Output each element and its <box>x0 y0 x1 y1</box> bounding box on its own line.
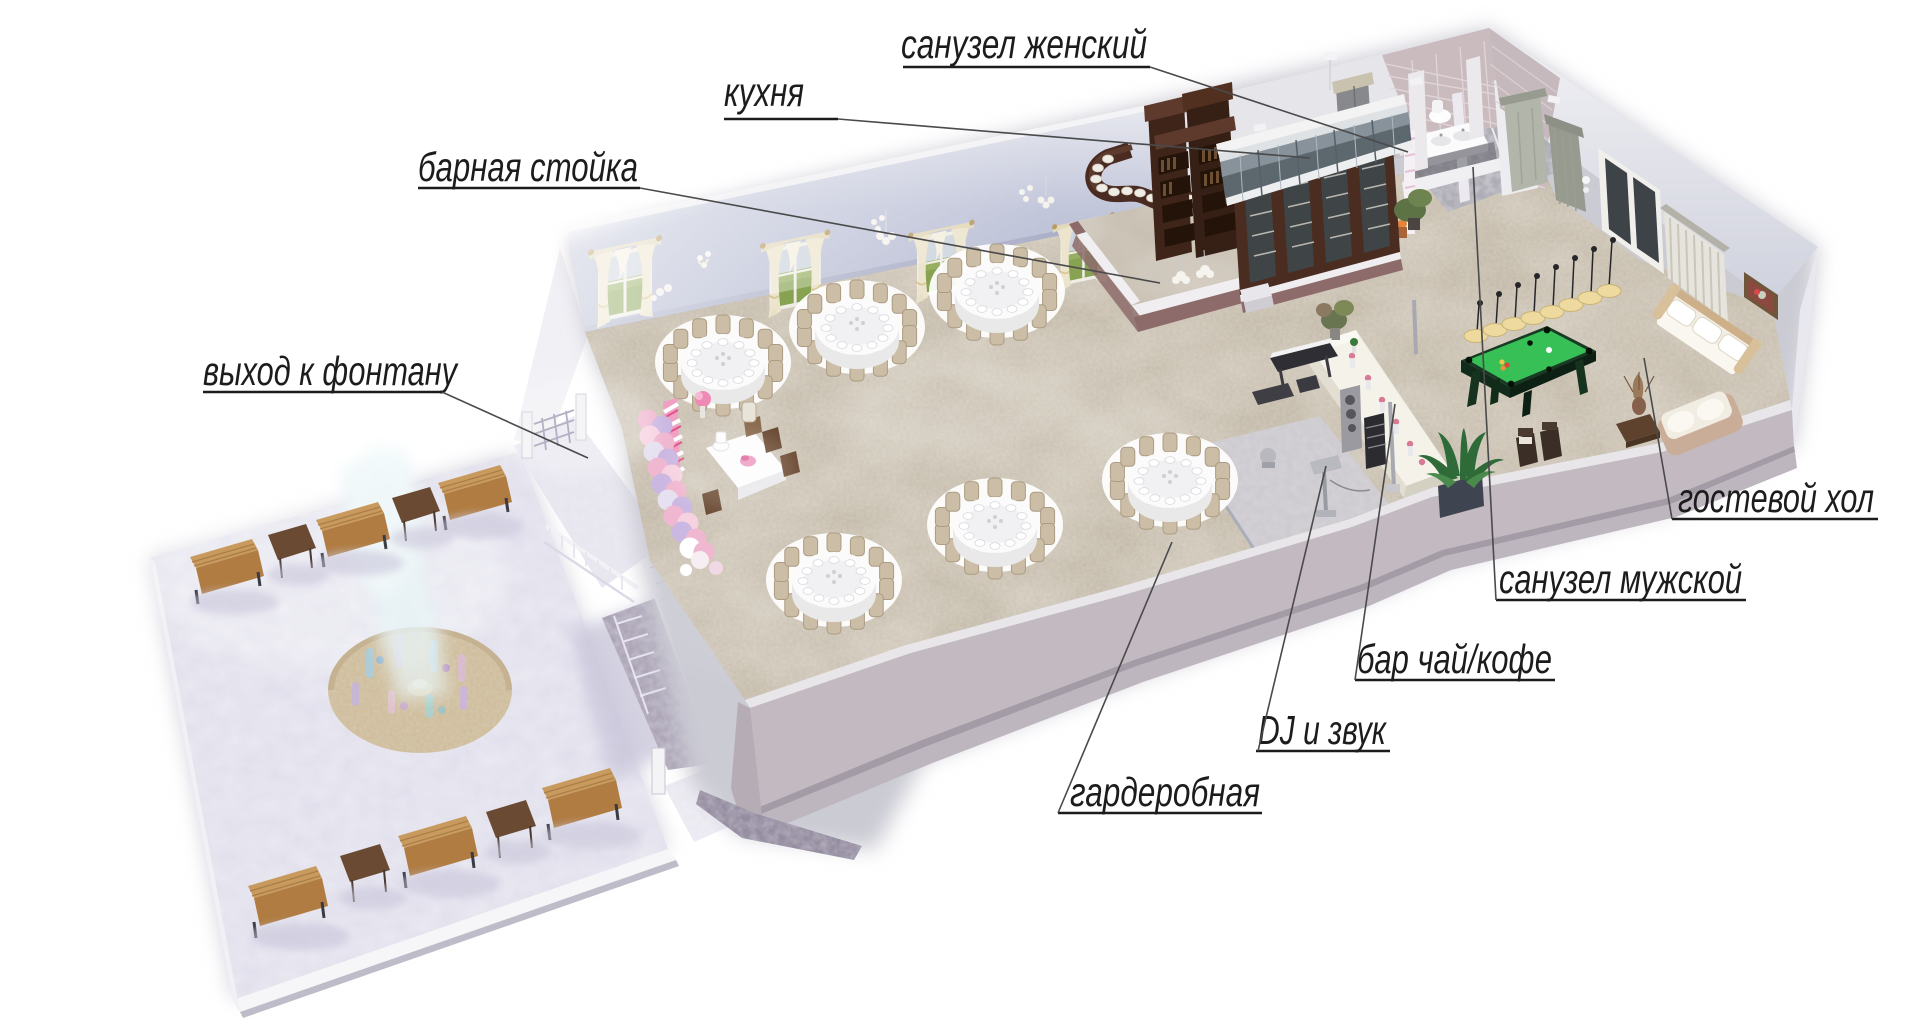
svg-text:гостевой хол: гостевой хол <box>1678 475 1874 521</box>
svg-text:кухня: кухня <box>724 69 804 115</box>
svg-text:санузел мужской: санузел мужской <box>1499 556 1742 602</box>
svg-text:DJ и звук: DJ и звук <box>1258 707 1387 753</box>
svg-text:выход к фонтану: выход к фонтану <box>203 348 459 394</box>
svg-text:гардеробная: гардеробная <box>1070 769 1260 815</box>
svg-text:бар чай/кофе: бар чай/кофе <box>1357 636 1552 682</box>
svg-text:барная стойка: барная стойка <box>418 144 638 190</box>
svg-text:санузел женский: санузел женский <box>901 21 1147 67</box>
